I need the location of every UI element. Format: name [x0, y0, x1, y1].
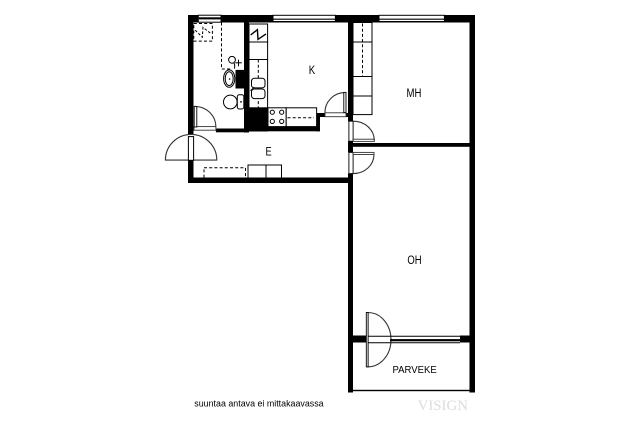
svg-text:PARVEKE: PARVEKE — [392, 365, 437, 376]
svg-text:suuntaa antava ei mittakaavass: suuntaa antava ei mittakaavassa — [194, 399, 323, 409]
svg-text:E: E — [266, 146, 272, 158]
svg-text:OH: OH — [407, 255, 421, 267]
svg-text:K: K — [309, 65, 316, 77]
svg-text:MH: MH — [407, 88, 422, 100]
svg-text:VISIGN: VISIGN — [418, 398, 469, 414]
